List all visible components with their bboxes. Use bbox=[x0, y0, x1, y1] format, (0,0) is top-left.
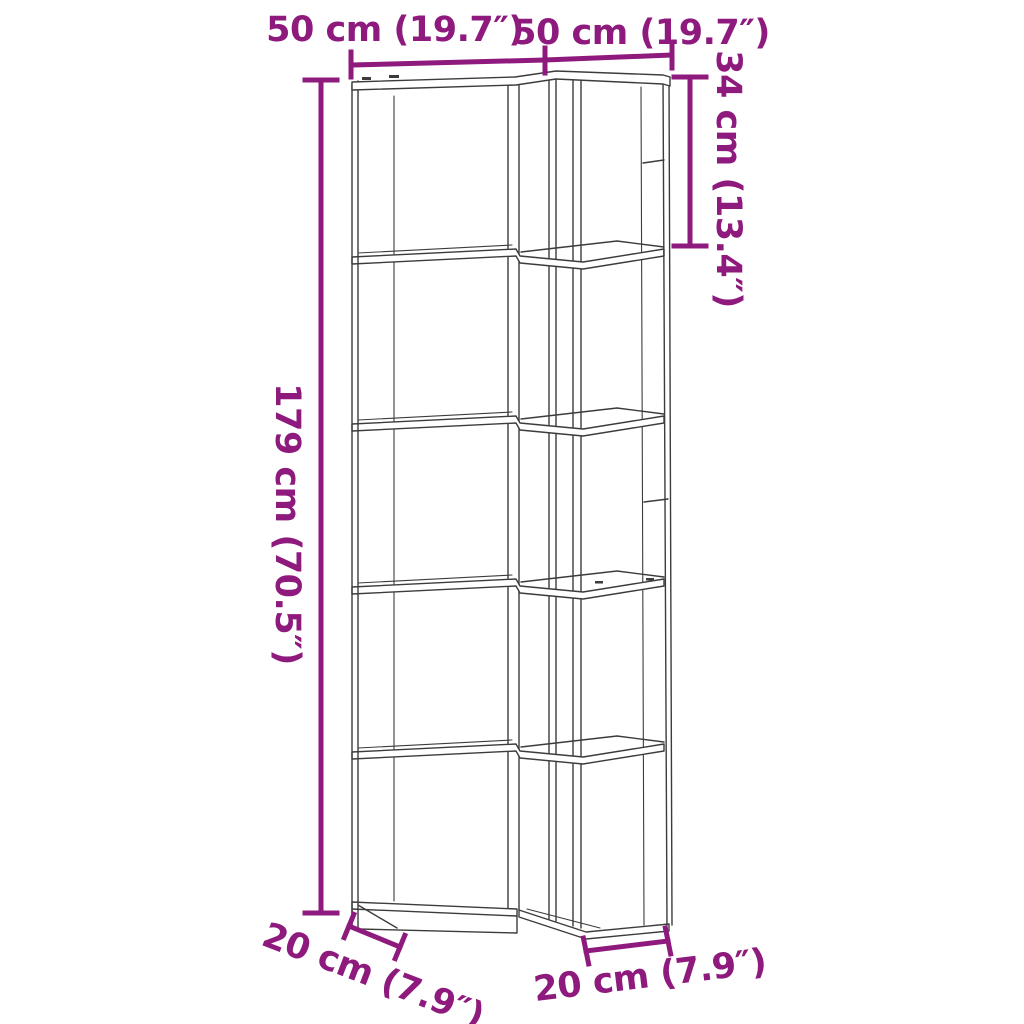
dimension-label-top-tier-height: 34 cm (13.4″) bbox=[708, 50, 748, 308]
dimension-label-top-right-width: 50 cm (19.7″) bbox=[512, 13, 770, 53]
shelf-base bbox=[352, 902, 669, 939]
shelf-interior-lines bbox=[394, 73, 668, 928]
dimension-label-height: 179 cm (70.5″) bbox=[267, 383, 307, 665]
dimension-diagram-canvas: 50 cm (19.7″) 50 cm (19.7″) 179 cm (70.5… bbox=[0, 0, 1024, 1024]
dimension-lines bbox=[305, 43, 706, 964]
corner-bookshelf-line-art bbox=[0, 0, 1024, 1024]
dimension-label-top-left-width: 50 cm (19.7″) bbox=[266, 10, 524, 50]
shelf-outer-frame bbox=[352, 71, 672, 929]
